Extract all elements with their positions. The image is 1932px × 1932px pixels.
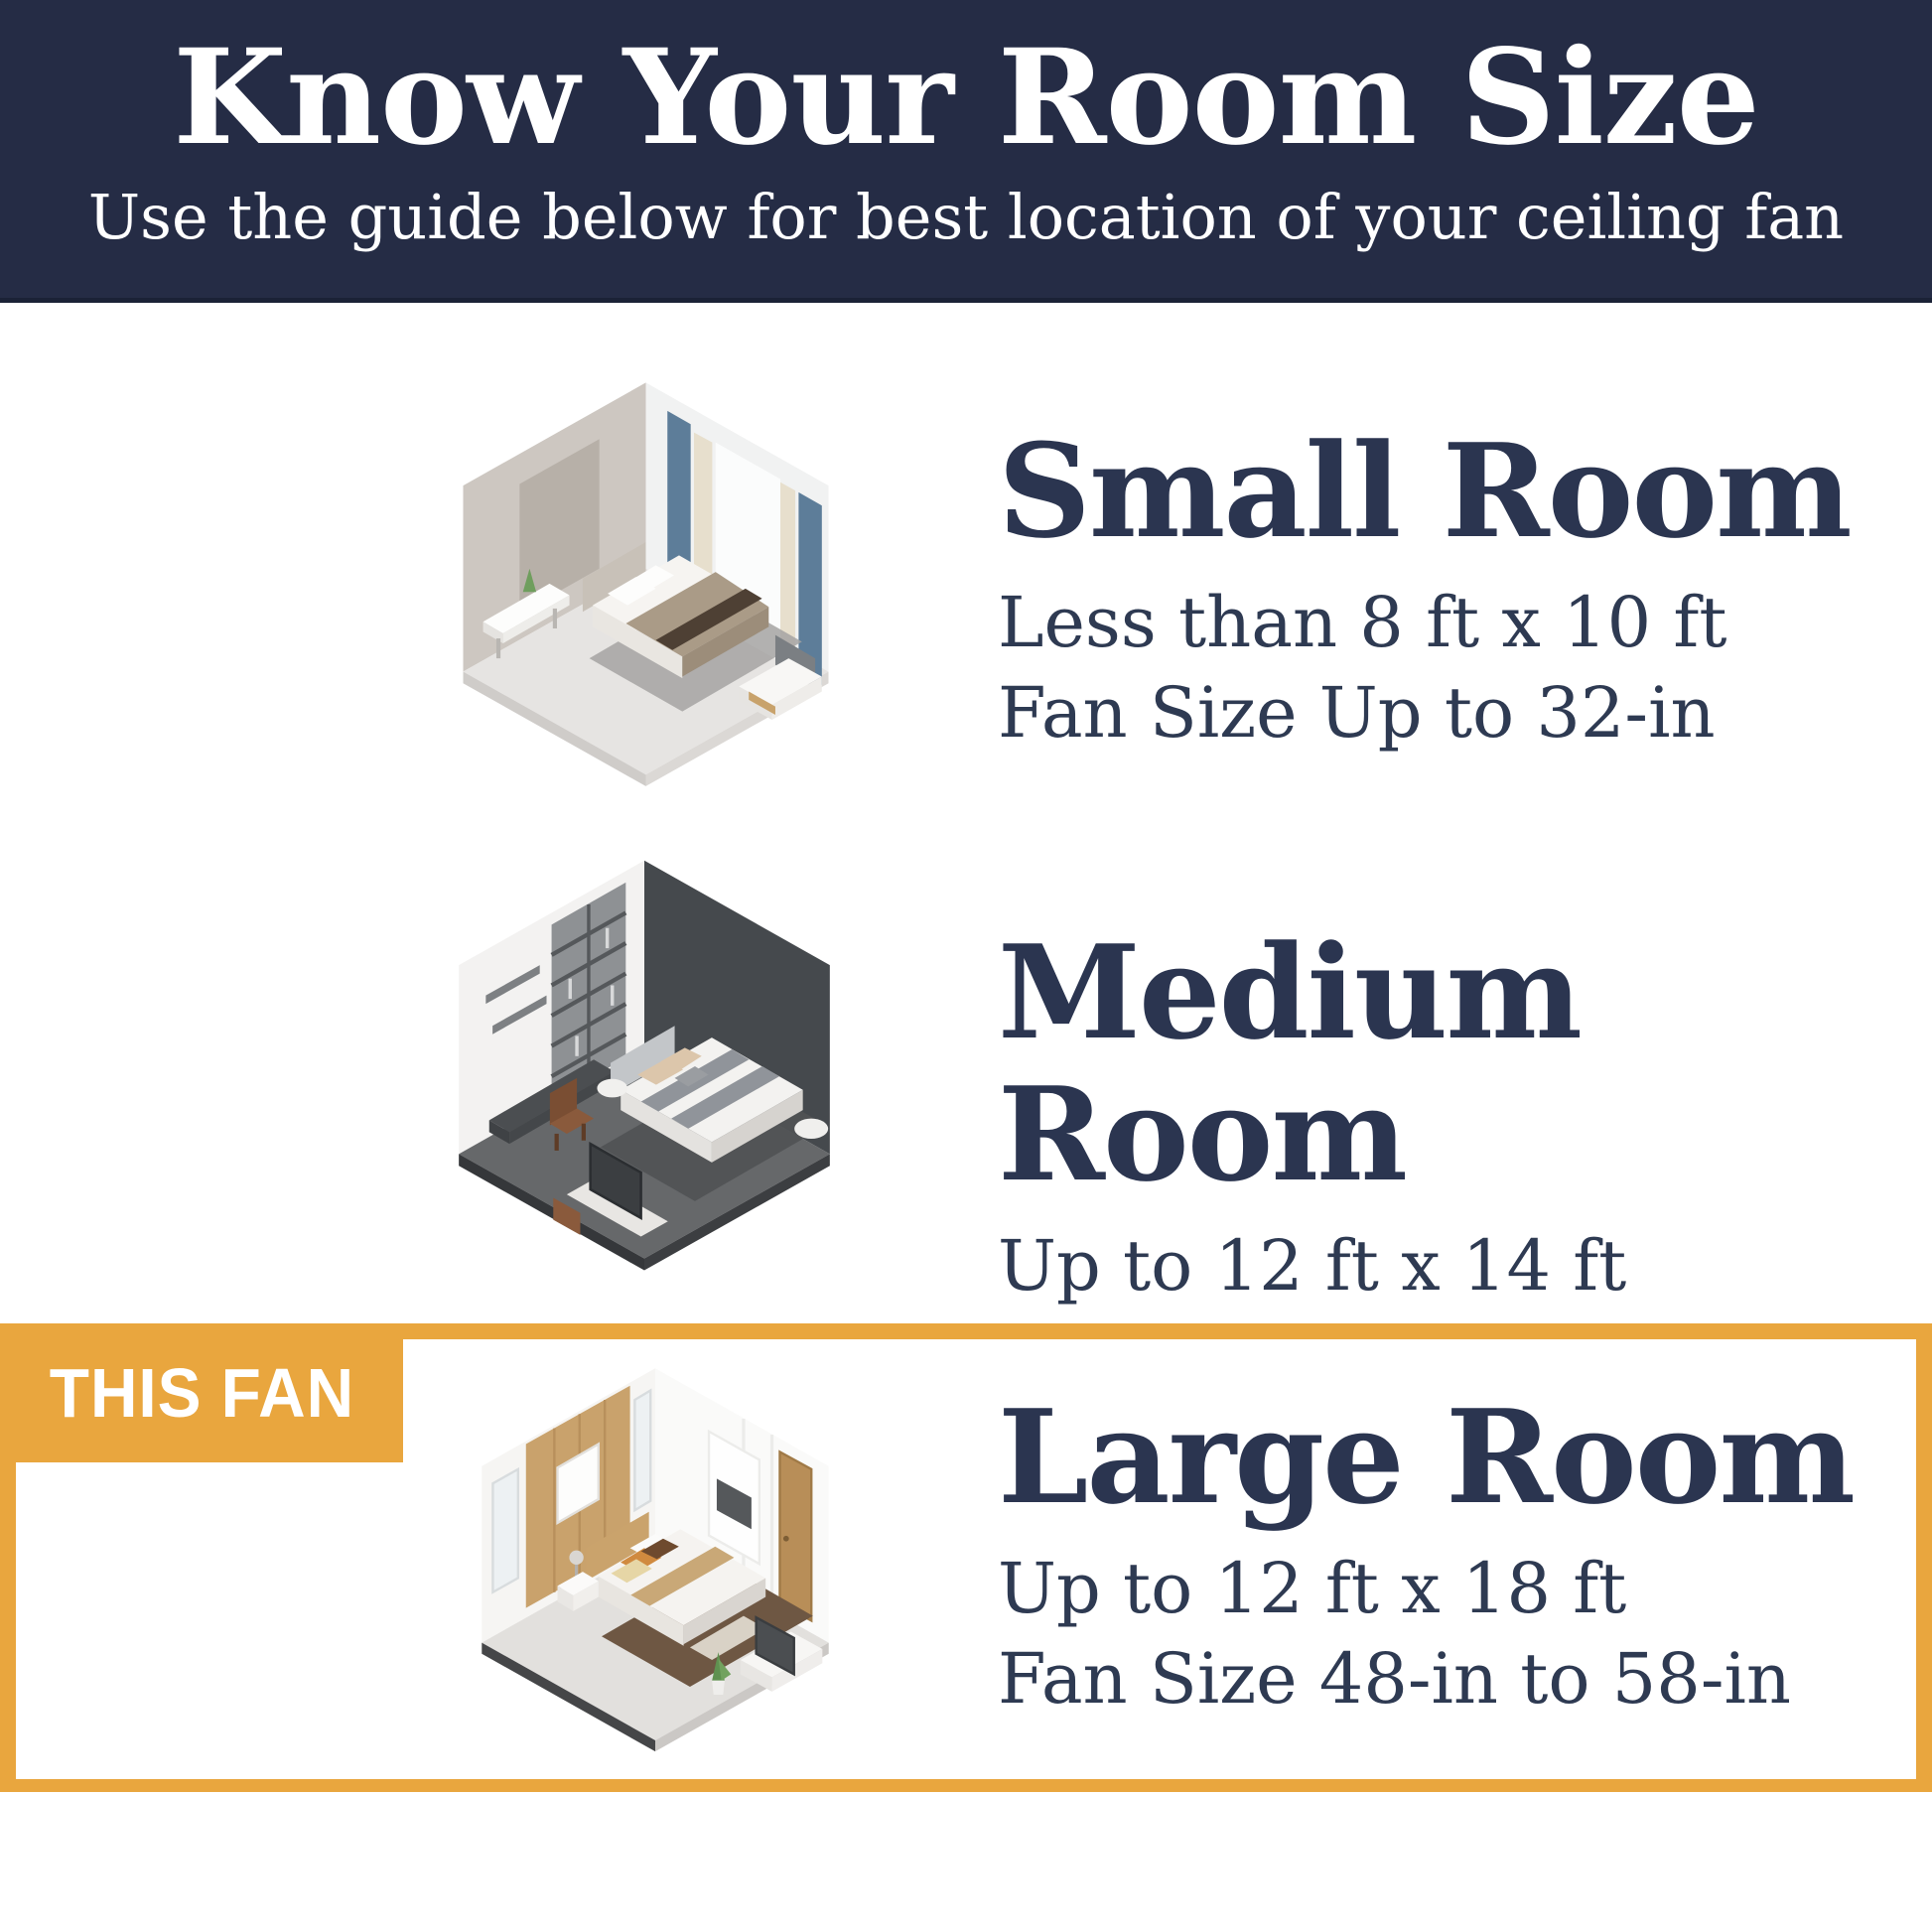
medium-room-dimensions: Up to 12 ft x 14 ft	[998, 1221, 1932, 1311]
this-fan-label: THIS FAN	[49, 1353, 353, 1433]
large-room-dimensions: Up to 12 ft x 18 ft	[998, 1544, 1854, 1634]
medium-room-title: Medium Room	[998, 921, 1932, 1205]
door	[779, 1451, 811, 1620]
room-size-infographic: Know Your Room Size Use the guide below …	[0, 0, 1932, 1932]
section-small-room: Small Room Less than 8 ft x 10 ft Fan Si…	[998, 420, 1851, 759]
small-room-title: Small Room	[998, 420, 1851, 562]
header-band: Know Your Room Size Use the guide below …	[0, 0, 1932, 303]
small-room-fan-size: Fan Size Up to 32-in	[998, 668, 1851, 759]
section-large-room: Large Room Up to 12 ft x 18 ft Fan Size …	[998, 1386, 1854, 1725]
large-room-illustration	[409, 1346, 901, 1775]
small-room-dimensions: Less than 8 ft x 10 ft	[998, 578, 1851, 668]
medium-room-illustration	[390, 837, 898, 1296]
large-room-title: Large Room	[998, 1386, 1854, 1528]
page-title: Know Your Room Size	[0, 30, 1932, 168]
page-subtitle: Use the guide below for best location of…	[0, 184, 1932, 251]
small-room-illustration	[395, 359, 897, 811]
this-fan-badge: THIS FAN	[0, 1323, 403, 1462]
large-room-fan-size: Fan Size 48-in to 58-in	[998, 1634, 1854, 1725]
